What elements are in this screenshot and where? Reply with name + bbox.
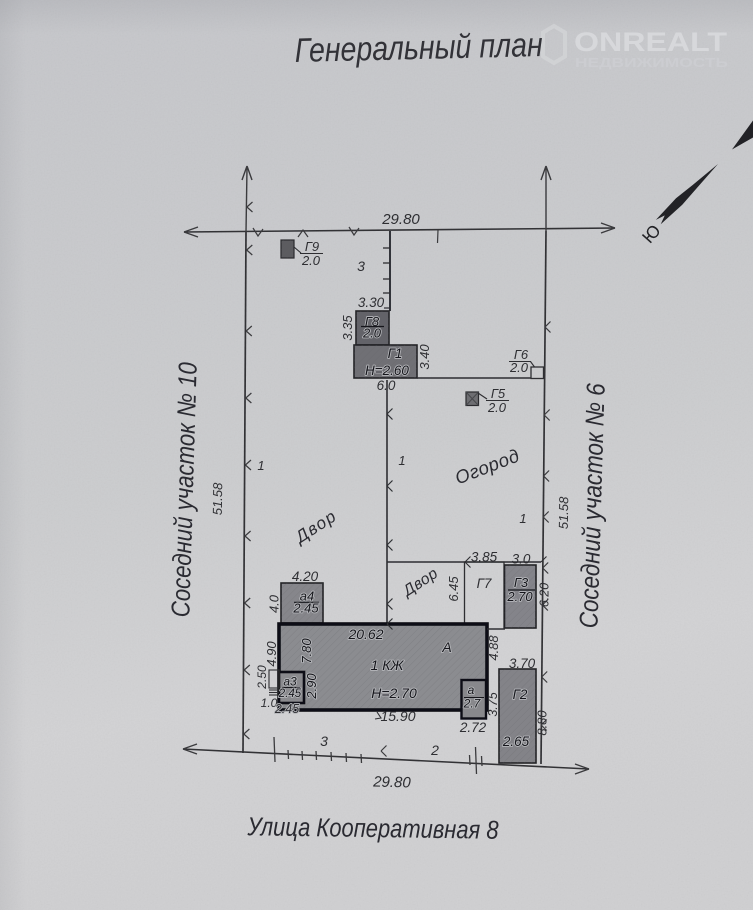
svg-text:Г5: Г5 [491,386,506,401]
svg-text:а3: а3 [283,675,297,689]
svg-text:Г7: Г7 [477,576,492,591]
svg-text:3: 3 [357,258,365,274]
svg-text:2.45: 2.45 [274,702,299,716]
svg-text:2.45: 2.45 [278,688,302,700]
svg-text:8.80: 8.80 [535,710,550,736]
svg-text:3.40: 3.40 [417,344,432,370]
svg-text:4.90: 4.90 [264,641,279,667]
svg-text:а: а [468,683,475,697]
svg-text:ONREALT: ONREALT [574,27,728,57]
svg-text:Н=2.70: Н=2.70 [371,685,417,701]
svg-text:2: 2 [430,742,439,758]
svg-text:2.0: 2.0 [487,400,507,415]
svg-text:2.70: 2.70 [506,589,533,604]
svg-text:Генеральный план: Генеральный план [294,26,543,70]
svg-text:НЕДВИЖИМОСТЬ: НЕДВИЖИМОСТЬ [575,55,728,70]
svg-text:1: 1 [257,458,264,473]
svg-text:4.0: 4.0 [267,594,282,613]
svg-text:2.65: 2.65 [502,734,530,749]
svg-text:4.88: 4.88 [486,635,501,661]
svg-text:15.90: 15.90 [380,708,415,724]
svg-text:6.20: 6.20 [538,583,552,607]
svg-text:2.0: 2.0 [509,360,529,375]
svg-text:3.75: 3.75 [486,692,500,716]
svg-text:2.0: 2.0 [362,326,382,341]
svg-text:3.70: 3.70 [509,656,536,671]
svg-text:7.80: 7.80 [299,638,314,664]
svg-text:Н=2.60: Н=2.60 [365,363,409,378]
svg-text:3.35: 3.35 [340,315,355,341]
svg-text:Г9: Г9 [305,239,319,254]
svg-text:1 КЖ: 1 КЖ [371,657,405,673]
svg-text:А: А [441,639,451,655]
svg-text:1: 1 [519,511,526,526]
svg-text:2.0: 2.0 [301,253,321,268]
svg-text:2.45: 2.45 [292,601,319,616]
svg-text:29.80: 29.80 [372,773,412,791]
svg-text:29.80: 29.80 [381,211,420,228]
svg-text:Г2: Г2 [513,687,528,702]
svg-text:Г1: Г1 [388,346,403,361]
svg-text:2.90: 2.90 [304,673,319,700]
svg-text:4.20: 4.20 [292,569,319,584]
svg-text:2.7: 2.7 [463,697,482,711]
svg-text:51.58: 51.58 [210,482,226,516]
svg-text:Г3: Г3 [514,575,529,590]
svg-text:2.72: 2.72 [459,720,487,735]
svg-text:51.58: 51.58 [556,496,572,530]
svg-text:3: 3 [320,733,328,749]
svg-text:20.62: 20.62 [347,626,383,642]
svg-text:3.30: 3.30 [358,295,385,310]
svg-text:Улица Кооперативная 8: Улица Кооперативная 8 [246,811,499,845]
svg-text:6.45: 6.45 [446,576,461,602]
svg-text:1: 1 [398,453,405,468]
svg-text:2.50: 2.50 [255,665,269,690]
